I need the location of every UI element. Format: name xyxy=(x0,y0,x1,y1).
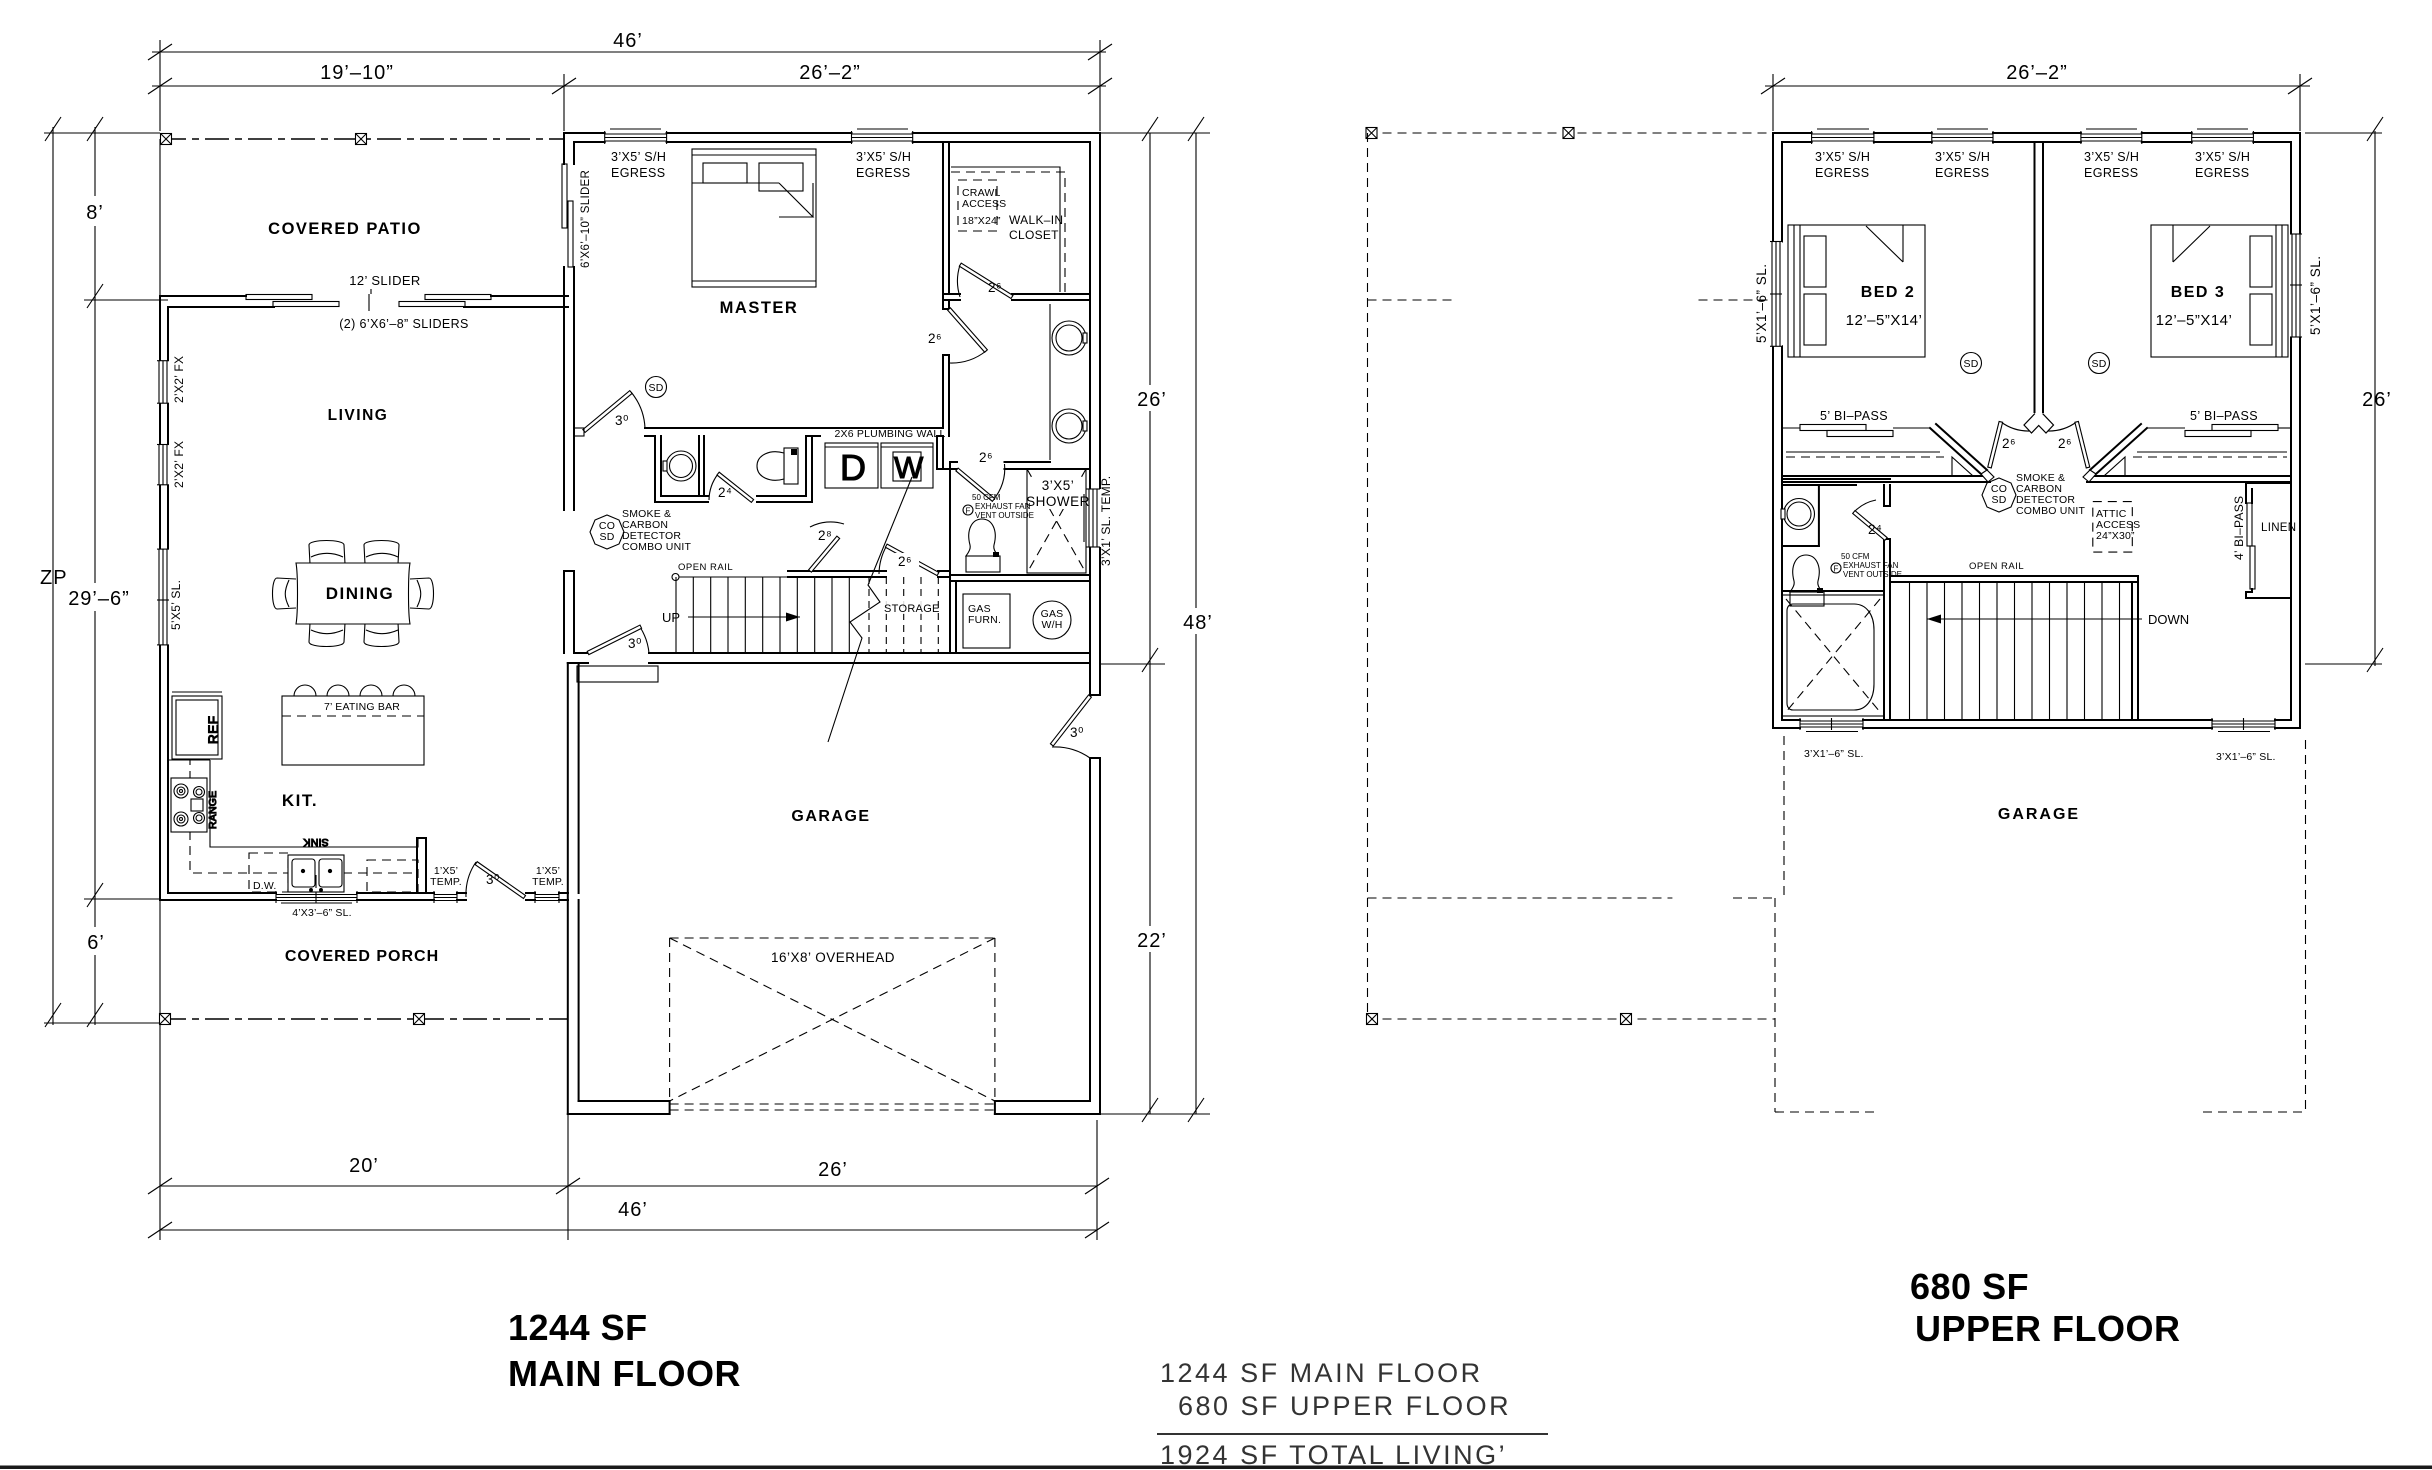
svg-text:2⁶: 2⁶ xyxy=(2002,436,2016,451)
svg-text:TEMP.: TEMP. xyxy=(532,876,564,888)
svg-text:2X6 PLUMBING WALL: 2X6 PLUMBING WALL xyxy=(835,428,946,440)
svg-text:26’: 26’ xyxy=(2362,389,2392,411)
svg-text:2⁴: 2⁴ xyxy=(1868,522,1882,537)
svg-text:24”X30”: 24”X30” xyxy=(2096,530,2135,542)
svg-text:2’X2’ FX: 2’X2’ FX xyxy=(172,356,186,403)
svg-text:22’: 22’ xyxy=(1137,930,1167,952)
svg-text:20’: 20’ xyxy=(349,1155,379,1177)
svg-text:26’–2”: 26’–2” xyxy=(2006,62,2068,84)
svg-text:5’X1’–6” SL.: 5’X1’–6” SL. xyxy=(2308,255,2323,335)
svg-text:46’: 46’ xyxy=(618,1199,648,1221)
svg-text:LINEN: LINEN xyxy=(2261,522,2296,534)
svg-text:2⁶: 2⁶ xyxy=(988,280,1002,295)
svg-text:F: F xyxy=(1834,565,1839,574)
svg-text:EXHAUST FAN: EXHAUST FAN xyxy=(1843,561,1899,570)
svg-text:SD: SD xyxy=(1992,494,2007,506)
svg-text:DOWN: DOWN xyxy=(2148,612,2189,627)
svg-text:SD: SD xyxy=(649,382,664,394)
svg-text:3’X1’–6” SL.: 3’X1’–6” SL. xyxy=(2216,751,2276,763)
svg-text:SD: SD xyxy=(2092,358,2107,370)
svg-text:3’X5’ S/H: 3’X5’ S/H xyxy=(2084,150,2139,164)
svg-text:EGRESS: EGRESS xyxy=(2084,166,2139,180)
svg-text:EGRESS: EGRESS xyxy=(2195,166,2250,180)
svg-text:26’: 26’ xyxy=(818,1159,848,1181)
svg-text:OPEN RAIL: OPEN RAIL xyxy=(1969,561,2024,572)
svg-text:2⁶: 2⁶ xyxy=(928,331,942,346)
svg-text:26’: 26’ xyxy=(1137,389,1167,411)
svg-text:W/H: W/H xyxy=(1041,619,1062,631)
svg-text:GARAGE: GARAGE xyxy=(1998,806,2080,823)
svg-text:SINK: SINK xyxy=(303,836,328,848)
svg-text:26’–2”: 26’–2” xyxy=(799,62,861,84)
svg-text:50 CFM: 50 CFM xyxy=(972,493,1001,502)
svg-text:48’: 48’ xyxy=(1183,612,1213,634)
svg-text:VENT OUTSIDE: VENT OUTSIDE xyxy=(1843,570,1902,579)
svg-text:5’ BI–PASS: 5’ BI–PASS xyxy=(2190,409,2258,423)
svg-text:SD: SD xyxy=(1964,358,1979,370)
svg-text:1244 SF: 1244 SF xyxy=(508,1307,648,1348)
svg-text:1244 SF MAIN FLOOR: 1244 SF MAIN FLOOR xyxy=(1160,1358,1483,1388)
svg-text:SD: SD xyxy=(600,531,615,543)
svg-text:SHOWER: SHOWER xyxy=(1026,494,1090,509)
svg-text:19’–10”: 19’–10” xyxy=(320,62,394,84)
svg-text:3’X1’–6” SL.: 3’X1’–6” SL. xyxy=(1804,748,1864,760)
svg-text:COVERED PATIO: COVERED PATIO xyxy=(268,220,422,238)
svg-text:4’X3’–6” SL.: 4’X3’–6” SL. xyxy=(292,907,352,919)
svg-text:18”X24”: 18”X24” xyxy=(962,215,1001,227)
svg-text:RANGE: RANGE xyxy=(207,791,219,829)
svg-text:2’X2’ FX: 2’X2’ FX xyxy=(172,441,186,488)
svg-text:W: W xyxy=(894,450,924,485)
svg-text:3’X5’ S/H: 3’X5’ S/H xyxy=(1935,150,1990,164)
svg-text:ACCESS: ACCESS xyxy=(962,198,1006,210)
svg-text:5’ BI–PASS: 5’ BI–PASS xyxy=(1820,409,1888,423)
svg-text:D.W.: D.W. xyxy=(253,880,277,892)
svg-text:EGRESS: EGRESS xyxy=(611,166,666,180)
svg-text:(2) 6’X6’–8” SLIDERS: (2) 6’X6’–8” SLIDERS xyxy=(339,317,469,331)
svg-text:3’X1’ SL. TEMP.: 3’X1’ SL. TEMP. xyxy=(1099,476,1113,566)
svg-text:6’X6’–10” SLIDER: 6’X6’–10” SLIDER xyxy=(580,170,592,268)
svg-text:12’–5”X14’: 12’–5”X14’ xyxy=(2156,312,2233,329)
svg-text:F: F xyxy=(966,507,971,516)
svg-text:MAIN FLOOR: MAIN FLOOR xyxy=(508,1353,741,1394)
svg-text:DINING: DINING xyxy=(326,584,395,603)
svg-text:2⁴: 2⁴ xyxy=(718,485,732,500)
svg-text:4’ BI–PASS: 4’ BI–PASS xyxy=(2232,496,2246,560)
svg-text:5’X1’–6” SL.: 5’X1’–6” SL. xyxy=(1754,263,1769,343)
svg-text:FURN.: FURN. xyxy=(968,614,1001,626)
svg-text:EGRESS: EGRESS xyxy=(1815,166,1870,180)
svg-text:EGRESS: EGRESS xyxy=(1935,166,1990,180)
svg-text:3⁰: 3⁰ xyxy=(628,636,642,651)
svg-text:LIVING: LIVING xyxy=(328,407,389,424)
svg-text:12’–5”X14’: 12’–5”X14’ xyxy=(1846,312,1923,329)
svg-text:COVERED PORCH: COVERED PORCH xyxy=(285,948,439,965)
svg-text:5’X5’ SL.: 5’X5’ SL. xyxy=(169,580,183,630)
svg-text:3’X5’ S/H: 3’X5’ S/H xyxy=(856,150,911,164)
svg-text:EGRESS: EGRESS xyxy=(856,166,911,180)
svg-text:2⁶: 2⁶ xyxy=(898,554,912,569)
svg-text:CLOSET: CLOSET xyxy=(1009,228,1059,242)
svg-text:2⁸: 2⁸ xyxy=(818,528,832,543)
svg-text:COMBO UNIT: COMBO UNIT xyxy=(622,541,691,553)
svg-text:680 SF: 680 SF xyxy=(1910,1266,2029,1307)
svg-text:8’: 8’ xyxy=(86,202,104,224)
svg-text:3⁰: 3⁰ xyxy=(486,872,500,887)
svg-text:REF: REF xyxy=(206,716,221,745)
svg-text:3’X5’: 3’X5’ xyxy=(1042,478,1075,493)
svg-text:2⁶: 2⁶ xyxy=(979,450,993,465)
svg-text:COMBO UNIT: COMBO UNIT xyxy=(2016,505,2085,517)
svg-text:TEMP.: TEMP. xyxy=(430,876,462,888)
svg-text:29’–6”: 29’–6” xyxy=(68,588,130,610)
svg-text:680 SF UPPER FLOOR: 680 SF UPPER FLOOR xyxy=(1178,1391,1511,1421)
svg-text:D: D xyxy=(840,447,866,488)
svg-text:STORAGE: STORAGE xyxy=(884,603,940,615)
svg-text:3⁰: 3⁰ xyxy=(615,413,629,428)
svg-text:12’ SLIDER: 12’ SLIDER xyxy=(349,273,420,288)
svg-text:2⁶: 2⁶ xyxy=(2058,436,2072,451)
svg-text:UPPER FLOOR: UPPER FLOOR xyxy=(1915,1308,2181,1349)
svg-text:3’X5’ S/H: 3’X5’ S/H xyxy=(1815,150,1870,164)
svg-text:3⁰: 3⁰ xyxy=(1070,725,1084,740)
svg-text:GARAGE: GARAGE xyxy=(791,808,870,825)
svg-text:3’X5’ S/H: 3’X5’ S/H xyxy=(2195,150,2250,164)
svg-text:50 CFM: 50 CFM xyxy=(1841,552,1870,561)
svg-text:EXHAUST FAN: EXHAUST FAN xyxy=(975,502,1031,511)
svg-text:ZP: ZP xyxy=(40,567,68,589)
svg-text:46’: 46’ xyxy=(613,30,643,52)
svg-text:WALK–IN: WALK–IN xyxy=(1009,213,1063,227)
svg-text:7’ EATING BAR: 7’ EATING BAR xyxy=(324,701,400,713)
svg-text:6’: 6’ xyxy=(87,932,105,954)
svg-text:UP: UP xyxy=(662,610,680,625)
svg-text:OPEN RAIL: OPEN RAIL xyxy=(678,562,733,573)
svg-text:MASTER: MASTER xyxy=(720,299,799,317)
svg-text:BED 3: BED 3 xyxy=(2171,284,2226,301)
svg-text:16’X8’ OVERHEAD: 16’X8’ OVERHEAD xyxy=(771,950,895,965)
svg-text:BED 2: BED 2 xyxy=(1861,284,1916,301)
svg-text:3’X5’ S/H: 3’X5’ S/H xyxy=(611,150,666,164)
svg-text:KIT.: KIT. xyxy=(282,791,318,810)
